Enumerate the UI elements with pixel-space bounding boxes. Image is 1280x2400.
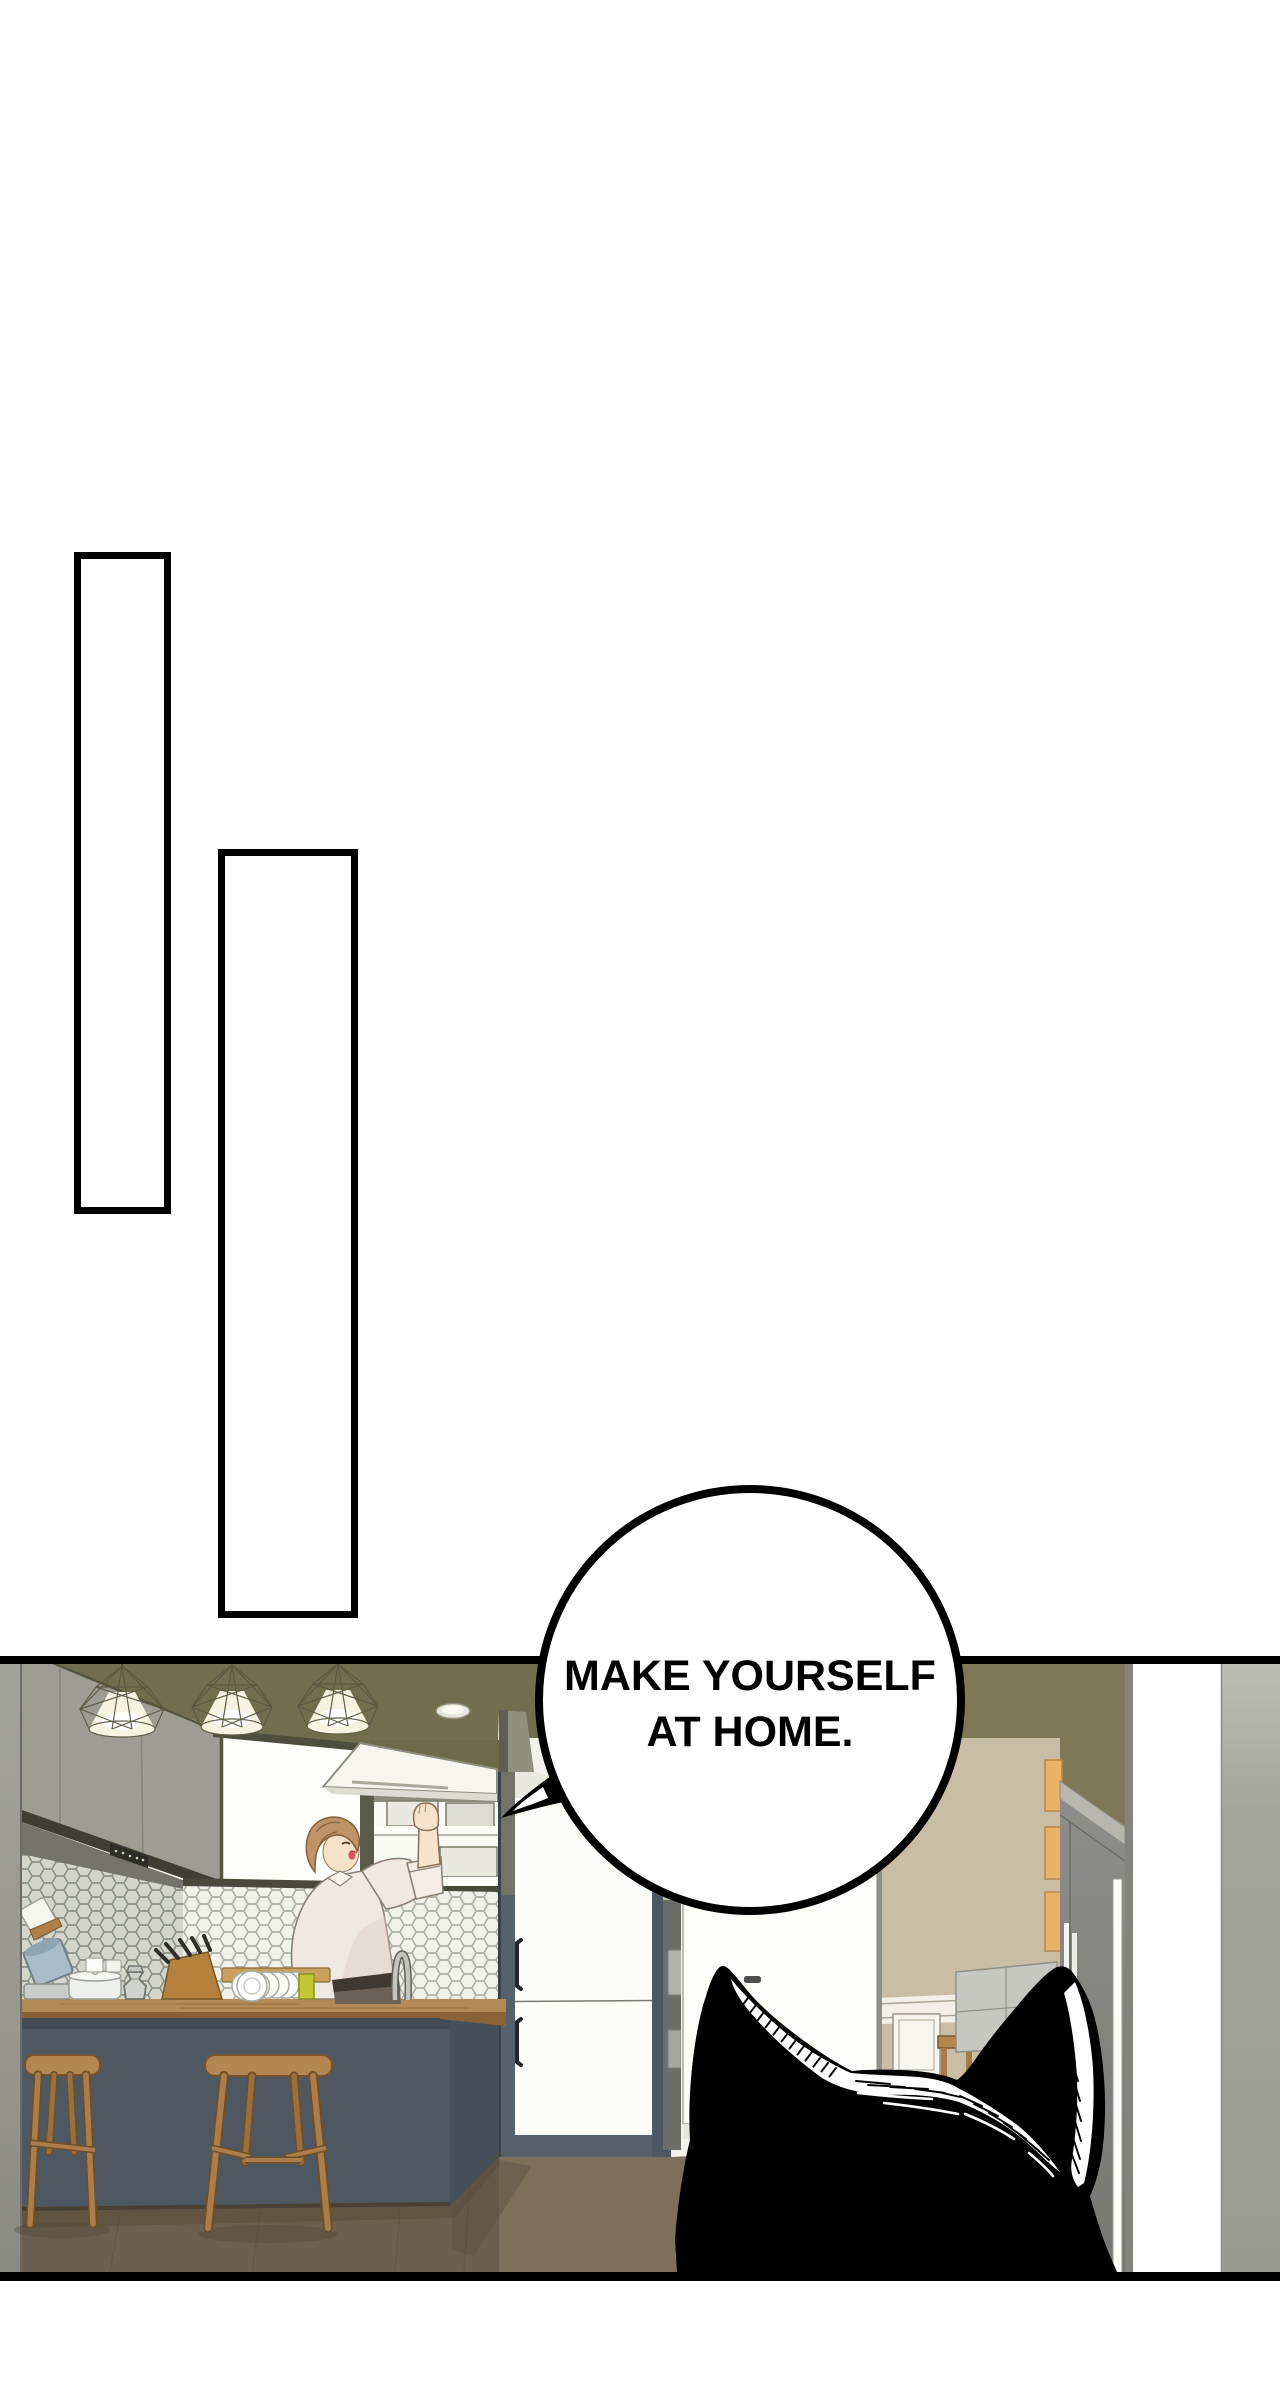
svg-text:MAKE YOURSELF: MAKE YOURSELF — [564, 1652, 936, 1700]
svg-text:AT HOME.: AT HOME. — [646, 1708, 853, 1756]
